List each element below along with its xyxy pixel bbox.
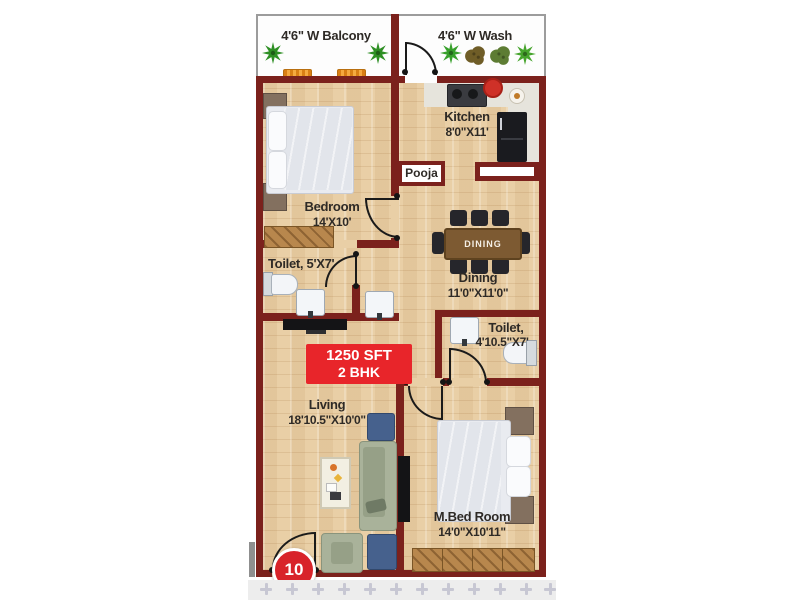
plant-icon xyxy=(367,42,389,64)
strip-tick-icon xyxy=(312,583,324,595)
plant-icon xyxy=(514,43,536,65)
bedroom-dims: 14'X10' xyxy=(292,215,372,229)
plant-icon xyxy=(440,42,462,64)
mbed-door-opening xyxy=(408,378,443,386)
kitchen-platform xyxy=(475,162,539,181)
armchair-icon xyxy=(321,533,363,573)
wall-toilet2-left xyxy=(435,310,442,386)
toilet1-label: Toilet, 5'X7' xyxy=(268,257,358,271)
coffee-table-icon xyxy=(320,457,351,509)
pillow-icon xyxy=(506,466,531,497)
bedroom-label: Bedroom xyxy=(292,200,372,214)
strip-tick-icon xyxy=(520,583,532,595)
living-dims: 18'10.5"X10'0" xyxy=(277,413,377,427)
strip-tick-icon xyxy=(260,583,272,595)
strip-tick-icon xyxy=(416,583,428,595)
wardrobe-icon xyxy=(442,548,473,572)
plant-icon xyxy=(262,42,284,64)
wash-label: 4'6" W Wash xyxy=(425,29,525,43)
hinge-dot xyxy=(432,69,438,75)
dining-label: Dining xyxy=(428,271,528,285)
dresser-icon xyxy=(264,226,334,248)
hinge-dot xyxy=(394,235,400,241)
washbasin-icon xyxy=(296,289,325,316)
ottoman-icon xyxy=(367,534,397,570)
hinge-dot xyxy=(402,69,408,75)
bed-blanket xyxy=(284,108,352,190)
wash-door-opening xyxy=(405,76,437,83)
tv-icon xyxy=(283,319,347,330)
pooja-room: Pooja xyxy=(398,161,445,186)
dining-chair-icon xyxy=(492,210,509,226)
dining-chair-icon xyxy=(450,210,467,226)
toilet-icon xyxy=(271,274,298,295)
strip-tick-icon xyxy=(494,583,506,595)
area-badge-sft: 1250 SFT xyxy=(306,348,412,364)
wall-toilet2-top xyxy=(435,310,539,317)
bed-blanket xyxy=(439,422,501,518)
living-label: Living xyxy=(277,398,377,412)
plate-icon xyxy=(509,88,525,104)
kitchen-sink-icon xyxy=(483,78,503,98)
balcony-label: 4'6" W Balcony xyxy=(266,29,386,43)
hinge-dot xyxy=(353,283,359,289)
tv-icon xyxy=(398,456,410,522)
pillow-icon xyxy=(268,111,287,151)
toilet1-door-opening xyxy=(330,240,357,248)
kitchen-label: Kitchen xyxy=(427,110,507,124)
strip-tick-icon xyxy=(364,583,376,595)
strip-tick-icon xyxy=(468,583,480,595)
dining-dims: 11'0"X11'0" xyxy=(428,286,528,300)
tv-stand-icon xyxy=(306,330,326,334)
dining-chair-icon xyxy=(432,232,444,254)
pillow-icon xyxy=(268,151,287,189)
kitchen-dims: 8'0"X11' xyxy=(427,125,507,139)
mbed-dims: 14'0"X10'11" xyxy=(422,525,522,539)
strip-tick-icon xyxy=(442,583,454,595)
sofa-icon xyxy=(359,441,397,531)
wall-left xyxy=(256,76,263,577)
plant-icon xyxy=(464,44,486,66)
wardrobe-icon xyxy=(472,548,503,572)
toilet2-label: Toilet, xyxy=(470,321,542,335)
dining-table: DINING xyxy=(444,228,522,260)
strip-tick-icon xyxy=(390,583,402,595)
wardrobe-icon xyxy=(502,548,535,572)
stove-icon xyxy=(447,84,487,107)
strip-tick-icon xyxy=(338,583,350,595)
strip-tick-icon xyxy=(544,583,556,595)
toilet2-dims: 4'10.5"X7' xyxy=(462,335,542,349)
entry-step xyxy=(249,542,255,577)
hinge-dot xyxy=(446,379,452,385)
strip-tick-icon xyxy=(286,583,298,595)
mbed-label: M.Bed Room xyxy=(422,510,522,524)
pillow-icon xyxy=(506,436,531,467)
area-badge-bhk: 2 BHK xyxy=(306,364,412,380)
hinge-dot xyxy=(484,379,490,385)
floor-plan: 4'6" W Balcony 4'6" W Wash Pooja xyxy=(0,0,800,600)
hinge-dot xyxy=(394,193,400,199)
plant-icon xyxy=(489,44,511,66)
area-badge: 1250 SFT 2 BHK xyxy=(306,344,412,384)
washbasin-icon xyxy=(365,291,394,318)
dining-chair-icon xyxy=(471,210,488,226)
balcony-wash-divider-wall xyxy=(391,14,399,76)
wardrobe-icon xyxy=(412,548,443,572)
wall-top xyxy=(256,76,546,83)
